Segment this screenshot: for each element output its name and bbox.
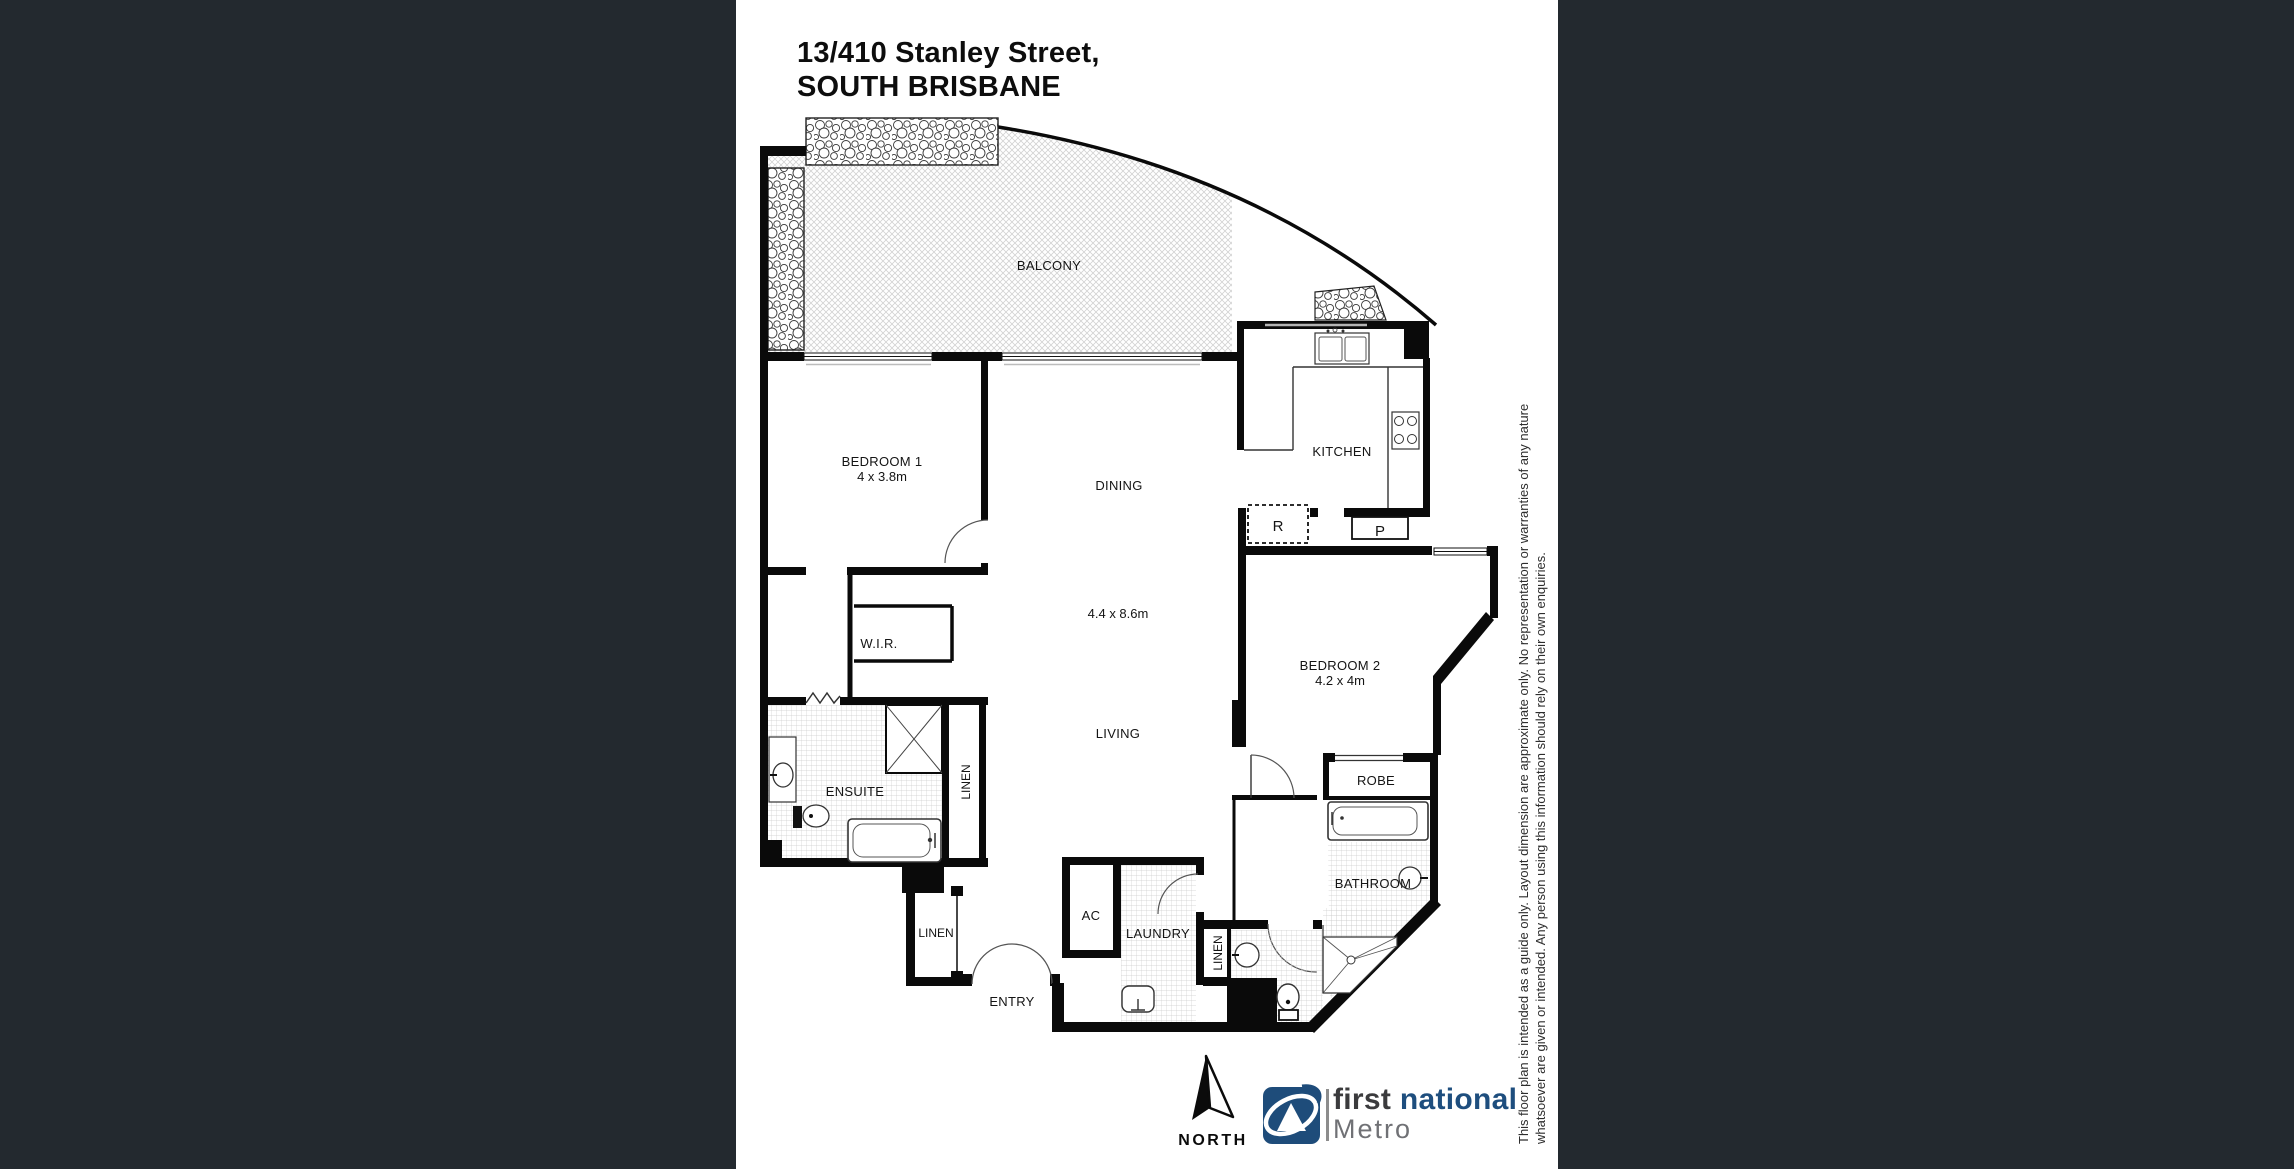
brand-word-first: first (1333, 1083, 1391, 1116)
label-robe: ROBE (1357, 773, 1395, 788)
bathtub-icon (848, 819, 941, 862)
planter-left (768, 168, 804, 350)
disclaimer-line1: This floor plan is intended as a guide o… (1515, 374, 1532, 1144)
window-bedroom2 (1434, 548, 1487, 555)
floorplan-drawing: BALCONY BEDROOM 1 4 x 3.8m DINING 4.4 x … (736, 0, 1558, 1169)
cooktop-icon (1392, 412, 1419, 449)
north-wall (760, 352, 1242, 365)
label-living: LIVING (1096, 726, 1140, 741)
label-linen-ensuite: LINEN (959, 764, 973, 799)
planter-top (806, 118, 998, 165)
toilet-icon (793, 805, 829, 828)
brand-name: first national (1333, 1085, 1517, 1115)
label-bedroom2-dims: 4.2 x 4m (1315, 673, 1365, 688)
bedroom2-walls (1232, 508, 1498, 798)
label-wir: W.I.R. (860, 636, 897, 651)
label-ac: AC (1082, 908, 1101, 923)
toilet2-icon (1277, 984, 1299, 1020)
brand-logo-icon (1260, 1086, 1323, 1144)
brand-word-national: national (1400, 1083, 1517, 1116)
north-arrow-icon: NORTH (1178, 1056, 1247, 1149)
window-dining (1002, 353, 1202, 365)
label-bedroom2: BEDROOM 2 (1300, 658, 1381, 673)
brand-text: first national Metro (1333, 1085, 1517, 1143)
entry-double-door (962, 944, 1060, 986)
label-linen-bath: LINEN (1211, 935, 1225, 970)
disclaimer: This floor plan is intended as a guide o… (1515, 374, 1549, 1144)
bedroom1-door-arc (945, 520, 988, 563)
label-fridge: R (1273, 518, 1284, 535)
label-bedroom1: BEDROOM 1 (842, 454, 923, 469)
bathtub2-icon (1328, 802, 1428, 840)
west-wall (760, 352, 768, 867)
window-bedroom1 (804, 353, 932, 365)
wir-wardrobe (854, 606, 952, 661)
label-bathroom: BATHROOM (1335, 876, 1412, 891)
label-living-dims: 4.4 x 8.6m (1088, 606, 1149, 621)
label-entry: ENTRY (989, 994, 1034, 1009)
north-label: NORTH (1178, 1132, 1247, 1149)
ensuite-folding-door (806, 693, 840, 703)
bedroom1-walls (760, 360, 988, 705)
label-linen-hall: LINEN (918, 926, 953, 940)
shower-icon (886, 705, 942, 773)
chamfer-wall-east (1433, 612, 1494, 684)
label-laundry: LAUNDRY (1126, 926, 1190, 941)
brand-divider (1326, 1089, 1329, 1141)
page: { "title": { "line1": "13/410 Stanley St… (0, 0, 2294, 1169)
floorplan-sheet: 13/410 Stanley Street, SOUTH BRISBANE (736, 0, 1558, 1169)
label-ensuite: ENSUITE (826, 784, 884, 799)
planter-right (1315, 286, 1386, 320)
ensuite-area (760, 697, 988, 867)
bedroom2-door-arc (1251, 755, 1294, 798)
disclaimer-line2: whatsoever are given or intended. Any pe… (1532, 374, 1549, 1144)
brand-sub: Metro (1333, 1116, 1517, 1143)
kitchen-area (1237, 321, 1430, 543)
label-balcony: BALCONY (1017, 258, 1081, 273)
label-dining: DINING (1095, 478, 1142, 493)
label-bedroom1-dims: 4 x 3.8m (857, 469, 907, 484)
bathroom-area (1227, 753, 1441, 1033)
label-pantry: P (1375, 523, 1385, 540)
kitchen-sink-icon (1315, 328, 1369, 364)
laundry-tub-icon (1122, 986, 1154, 1012)
label-kitchen: KITCHEN (1312, 444, 1371, 459)
vanity-icon (769, 737, 796, 802)
